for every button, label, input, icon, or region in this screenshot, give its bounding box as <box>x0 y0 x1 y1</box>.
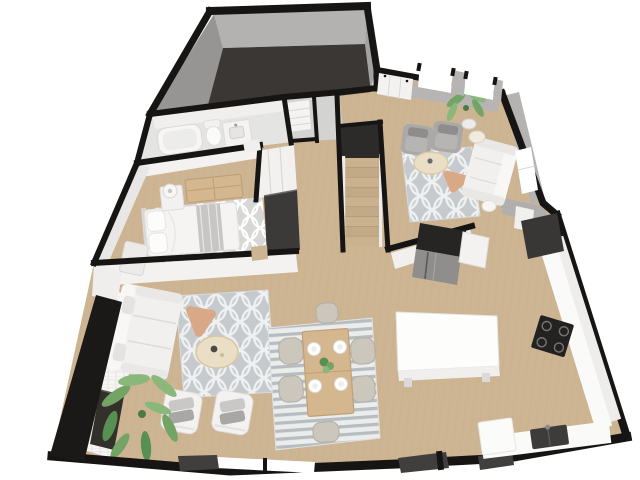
island-top <box>396 312 499 371</box>
lounge-chair-2 <box>211 389 255 436</box>
living-coffee-table <box>196 336 238 368</box>
family-plant-pot <box>462 119 476 129</box>
bedroom-closet <box>256 145 297 198</box>
fridge-side-cabinet <box>459 232 489 268</box>
dining-chair-top <box>315 302 338 323</box>
floor-plan-stage <box>0 0 640 480</box>
table-lamp-top <box>168 189 172 193</box>
dining-chair-left-2 <box>278 375 304 403</box>
island-leg <box>404 378 412 387</box>
dining-chair-bottom <box>312 421 339 443</box>
door-hinge <box>384 75 387 78</box>
coffee-table-vase <box>211 346 218 353</box>
window-mullion <box>263 458 267 471</box>
refrigerator <box>412 223 466 285</box>
end-cabinet <box>478 418 516 455</box>
door-hinge <box>406 80 409 83</box>
bed <box>141 200 240 259</box>
staircase <box>339 123 383 247</box>
wardrobe-dark <box>264 190 300 256</box>
family-table-decor <box>427 158 432 163</box>
family-side-table-1 <box>469 131 485 143</box>
garage-north-wall <box>210 6 367 11</box>
bathtub <box>156 123 203 156</box>
floor-plan-render <box>0 0 640 480</box>
bedroom-door-opening <box>251 245 268 261</box>
laundry-south-wall <box>291 139 316 141</box>
dining-chair-right-2 <box>350 375 376 403</box>
family-armchair-2 <box>430 120 464 154</box>
stair-treads <box>345 158 379 246</box>
dining-chair-right-1 <box>350 337 376 365</box>
stair-void <box>339 123 383 161</box>
kitchen-island <box>396 312 500 387</box>
coffee-table-decor <box>220 353 224 357</box>
garage-wall-face-top <box>214 9 366 48</box>
island-leg <box>482 373 490 382</box>
dining-chair-left-1 <box>278 337 304 365</box>
entry-threshold-1 <box>178 455 219 471</box>
pantry-opening <box>521 213 564 259</box>
family-side-table-2 <box>482 201 496 212</box>
